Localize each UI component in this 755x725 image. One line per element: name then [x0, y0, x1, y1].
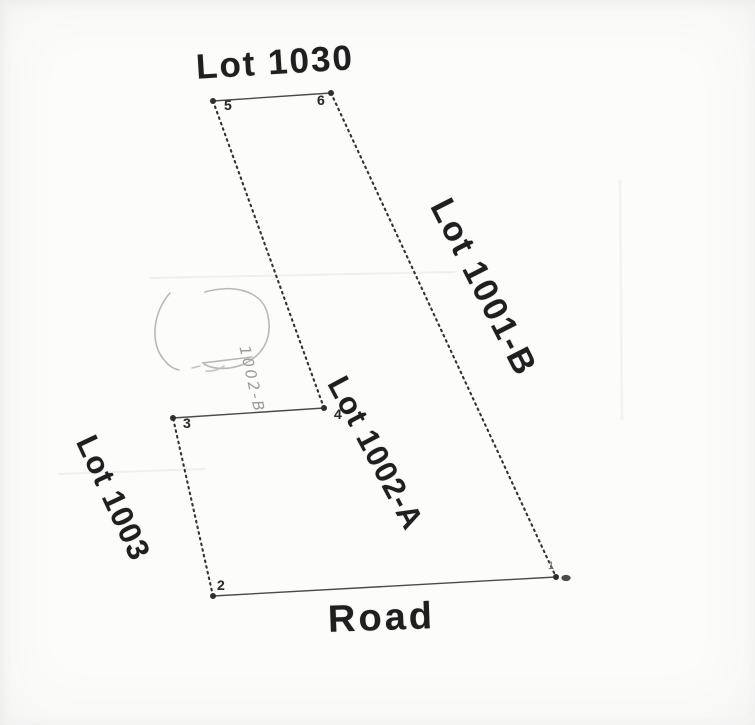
vertex-dot-1	[553, 574, 559, 580]
pencil-dash	[192, 366, 200, 368]
vertex-dot-2	[210, 593, 216, 599]
vertex-dot-4	[321, 405, 327, 411]
vertex-label-1: 1	[548, 560, 554, 572]
scan-fold	[620, 180, 622, 420]
monument-marker-oval	[561, 575, 570, 581]
vertex-label-4: 4	[334, 406, 342, 422]
vertex-label-3: 3	[183, 415, 191, 431]
vertex-label-2: 2	[217, 577, 225, 593]
vertex-dot-3	[170, 415, 176, 421]
boundary-edge-1-2	[213, 577, 556, 596]
scan-crease	[150, 272, 455, 278]
pencil-circle	[203, 289, 269, 369]
survey-sketch-page: Lot 1030 Lot 1001-B Lot 1002-A Lot 1003 …	[0, 0, 755, 725]
boundary-edge-3-4	[173, 408, 324, 418]
boundary-edge-4-5	[213, 101, 324, 408]
vertex-label-5: 5	[224, 97, 232, 113]
boundary-edge-2-3	[173, 418, 213, 596]
pencil-circle-arc	[155, 293, 179, 370]
vertex-dot-5	[210, 98, 216, 104]
vertex-label-6: 6	[317, 92, 325, 108]
vertex-dot-6	[328, 90, 334, 96]
label-road: Road	[327, 596, 435, 642]
